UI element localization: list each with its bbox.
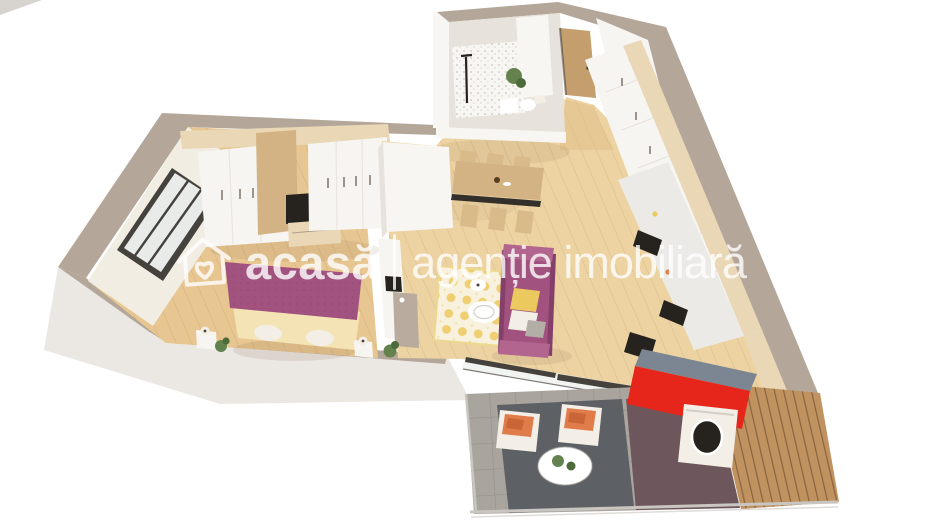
dining-chair	[488, 207, 507, 231]
washbasin	[500, 98, 518, 114]
counter-item-yellow	[652, 211, 657, 216]
lamp-left-base	[204, 330, 207, 333]
toilet-tank	[534, 95, 546, 104]
lounge-chair-2	[558, 404, 602, 446]
floorplan-render: acasă agenție imobiliară	[0, 0, 938, 527]
sofa-cushion-gray	[525, 320, 546, 338]
living-tv-screen	[385, 276, 402, 292]
bathroom-west-wall-face	[433, 12, 449, 128]
table-plant-leaf	[567, 462, 576, 471]
shower-column	[466, 57, 467, 103]
wardrobe-right-front	[308, 137, 388, 231]
corner-wall-sliver	[0, 0, 42, 15]
living-plant-leaf	[391, 341, 399, 349]
table-plate	[503, 182, 511, 186]
chair-pillow-orange	[506, 418, 524, 430]
chair-pillow-orange	[568, 412, 586, 424]
console-vase	[400, 298, 405, 303]
sofa-cushion-yellow	[510, 288, 540, 312]
side-table-leg	[477, 284, 480, 287]
dining-set	[451, 150, 544, 234]
table-centerpiece	[494, 177, 500, 183]
shower-head	[461, 55, 472, 56]
bedroom-plant-leaf	[222, 337, 229, 344]
tall-white-block-top	[383, 142, 453, 232]
lounge-chair-1	[496, 410, 540, 452]
tv-console	[393, 292, 419, 348]
lamp-right-base	[362, 340, 365, 343]
coffee-table	[468, 301, 500, 323]
dining-chair	[515, 210, 534, 234]
apartment-3d-scene	[0, 0, 938, 527]
counter-item-orange	[665, 269, 670, 274]
table-plant	[552, 455, 564, 467]
bathroom-plant-leaf	[516, 78, 526, 88]
dining-chair	[460, 204, 479, 228]
